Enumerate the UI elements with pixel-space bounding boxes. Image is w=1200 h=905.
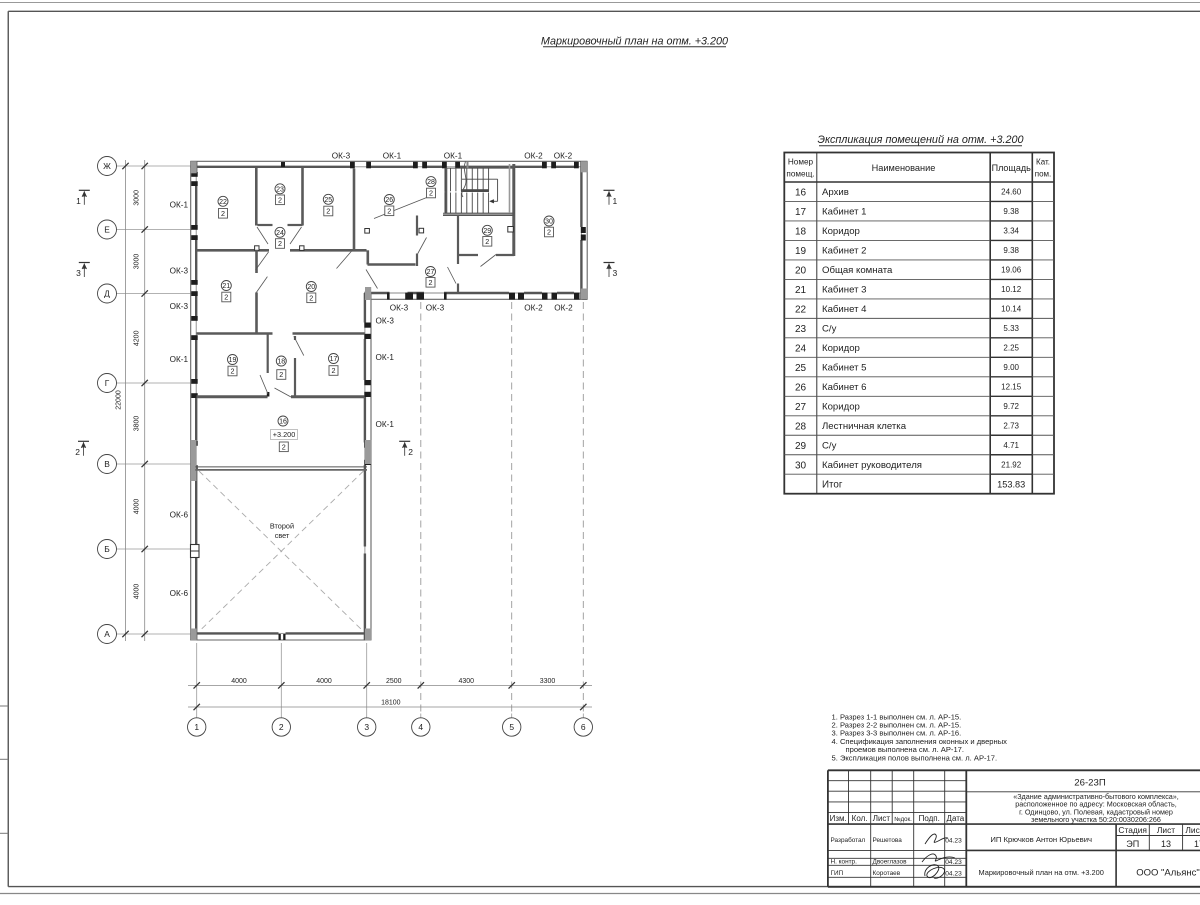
svg-text:20: 20 xyxy=(307,284,315,291)
svg-text:ОК-3: ОК-3 xyxy=(332,151,351,160)
svg-text:2: 2 xyxy=(75,447,80,457)
svg-text:29: 29 xyxy=(795,441,807,452)
svg-text:24: 24 xyxy=(795,343,807,354)
svg-text:23: 23 xyxy=(276,186,284,193)
svg-text:2: 2 xyxy=(429,189,433,198)
svg-text:ЭП: ЭП xyxy=(1126,839,1139,849)
svg-text:Коридор: Коридор xyxy=(822,343,860,354)
svg-text:1: 1 xyxy=(76,196,81,206)
svg-text:4200: 4200 xyxy=(133,330,140,346)
svg-text:16: 16 xyxy=(279,419,287,426)
svg-text:Кабинет 5: Кабинет 5 xyxy=(822,363,867,374)
svg-text:21.92: 21.92 xyxy=(1001,460,1022,469)
svg-text:29: 29 xyxy=(483,228,491,235)
svg-text:Коротаев: Коротаев xyxy=(873,870,901,877)
svg-text:2: 2 xyxy=(279,722,284,732)
svg-text:Листов: Листов xyxy=(1185,825,1200,835)
svg-text:ОК-1: ОК-1 xyxy=(170,200,189,209)
svg-text:2: 2 xyxy=(332,366,336,375)
svg-text:20: 20 xyxy=(795,265,807,276)
svg-text:2: 2 xyxy=(309,293,313,302)
svg-text:3: 3 xyxy=(613,268,618,278)
svg-text:ОК-2: ОК-2 xyxy=(554,303,573,312)
svg-text:Кабинет 6: Кабинет 6 xyxy=(822,382,867,393)
svg-text:2: 2 xyxy=(231,367,235,376)
svg-text:Номер: Номер xyxy=(788,158,814,167)
svg-text:Кабинет 2: Кабинет 2 xyxy=(822,246,867,257)
svg-text:3000: 3000 xyxy=(133,190,140,206)
svg-text:2: 2 xyxy=(224,293,228,302)
svg-text:30: 30 xyxy=(795,460,807,471)
svg-text:Д: Д xyxy=(104,289,110,299)
svg-text:ОК-6: ОК-6 xyxy=(170,510,189,519)
svg-text:А: А xyxy=(104,629,110,639)
svg-text:земельного участка 50:20:00302: земельного участка 50:20:0030206:266 xyxy=(1031,815,1161,824)
svg-text:30: 30 xyxy=(545,219,553,226)
svg-text:Кабинет 1: Кабинет 1 xyxy=(822,207,867,218)
svg-text:Н. контр.: Н. контр. xyxy=(831,859,858,866)
svg-text:12.15: 12.15 xyxy=(1001,382,1022,391)
svg-text:С/у: С/у xyxy=(822,440,837,451)
svg-text:2: 2 xyxy=(221,209,225,218)
svg-text:26: 26 xyxy=(385,197,393,204)
svg-text:19.06: 19.06 xyxy=(1001,266,1022,275)
svg-text:26: 26 xyxy=(795,382,807,393)
svg-text:2: 2 xyxy=(326,207,330,216)
svg-text:помещ.: помещ. xyxy=(786,170,814,179)
svg-text:Маркировочный план на отм. +3.: Маркировочный план на отм. +3.200 xyxy=(541,36,728,48)
svg-text:ОК-3: ОК-3 xyxy=(426,303,445,312)
svg-text:4000: 4000 xyxy=(133,499,140,515)
svg-text:Архив: Архив xyxy=(822,187,849,198)
svg-text:153.83: 153.83 xyxy=(997,480,1025,490)
svg-text:10.14: 10.14 xyxy=(1001,305,1022,314)
svg-text:6: 6 xyxy=(581,722,586,732)
svg-text:Экспликация помещений на отм.: Экспликация помещений на отм. +3.200 xyxy=(818,134,1024,146)
svg-text:Дата: Дата xyxy=(947,814,965,823)
svg-text:ООО "Альянс": ООО "Альянс" xyxy=(1136,867,1200,878)
svg-text:Лестничная клетка: Лестничная клетка xyxy=(822,421,907,432)
svg-text:ОК-1: ОК-1 xyxy=(376,420,395,429)
svg-text:свет: свет xyxy=(275,531,290,540)
svg-text:Двоеглазов: Двоеглазов xyxy=(873,859,908,866)
svg-text:18: 18 xyxy=(277,359,285,366)
svg-text:ОК-1: ОК-1 xyxy=(170,355,189,364)
svg-text:Кол.: Кол. xyxy=(852,814,868,823)
svg-text:9.38: 9.38 xyxy=(1003,207,1019,216)
svg-text:9.38: 9.38 xyxy=(1003,246,1019,255)
svg-text:4300: 4300 xyxy=(459,678,475,685)
svg-text:10.12: 10.12 xyxy=(1001,285,1022,294)
svg-text:4: 4 xyxy=(418,722,423,732)
svg-text:22000: 22000 xyxy=(116,390,123,410)
svg-text:2: 2 xyxy=(282,442,286,451)
svg-text:2500: 2500 xyxy=(386,678,402,685)
svg-text:ОК-3: ОК-3 xyxy=(170,266,189,275)
svg-text:ОК-2: ОК-2 xyxy=(554,151,573,160)
svg-text:Наименование: Наименование xyxy=(872,163,936,173)
svg-text:Лист: Лист xyxy=(873,814,891,823)
svg-text:2.73: 2.73 xyxy=(1003,421,1019,430)
svg-text:21: 21 xyxy=(795,285,807,296)
svg-text:27: 27 xyxy=(795,402,807,413)
svg-text:16: 16 xyxy=(795,188,807,199)
svg-text:3.34: 3.34 xyxy=(1003,227,1019,236)
svg-text:22: 22 xyxy=(795,304,807,315)
svg-text:21: 21 xyxy=(222,283,230,290)
svg-text:22: 22 xyxy=(219,199,227,206)
svg-text:ОК-3: ОК-3 xyxy=(390,303,409,312)
svg-text:2: 2 xyxy=(278,239,282,248)
svg-text:Е: Е xyxy=(104,225,110,235)
svg-text:Стадия: Стадия xyxy=(1118,825,1147,835)
svg-text:+3.200: +3.200 xyxy=(273,430,296,439)
svg-text:25: 25 xyxy=(795,363,807,374)
svg-text:2: 2 xyxy=(429,278,433,287)
svg-text:3: 3 xyxy=(364,722,369,732)
svg-text:ОК-1: ОК-1 xyxy=(444,151,463,160)
svg-text:23: 23 xyxy=(795,324,807,335)
svg-text:Кат.: Кат. xyxy=(1036,158,1050,167)
svg-text:5.33: 5.33 xyxy=(1003,324,1019,333)
svg-text:2: 2 xyxy=(547,228,551,237)
svg-text:ОК-1: ОК-1 xyxy=(376,353,395,362)
svg-text:В: В xyxy=(104,459,110,469)
svg-text:19: 19 xyxy=(795,246,807,257)
svg-text:Г: Г xyxy=(105,378,110,388)
svg-text:пом.: пом. xyxy=(1035,170,1052,179)
svg-text:Кабинет руководителя: Кабинет руководителя xyxy=(822,460,922,471)
svg-text:5: 5 xyxy=(509,722,514,732)
svg-text:Второй: Второй xyxy=(270,522,294,531)
svg-text:Ж: Ж xyxy=(103,161,111,171)
svg-text:4000: 4000 xyxy=(316,678,332,685)
svg-text:ОК-3: ОК-3 xyxy=(376,316,395,325)
svg-text:2: 2 xyxy=(485,237,489,246)
svg-text:4.71: 4.71 xyxy=(1003,441,1019,450)
svg-text:17: 17 xyxy=(330,356,338,363)
svg-text:27: 27 xyxy=(427,269,435,276)
svg-text:Б: Б xyxy=(104,544,110,554)
svg-text:2: 2 xyxy=(278,195,282,204)
svg-text:17: 17 xyxy=(795,207,807,218)
svg-text:ОК-1: ОК-1 xyxy=(383,151,402,160)
svg-text:Маркировочный план на отм. +3.: Маркировочный план на отм. +3.200 xyxy=(978,868,1103,877)
svg-text:17: 17 xyxy=(1194,839,1200,849)
svg-text:1: 1 xyxy=(613,196,618,206)
svg-text:Площадь: Площадь xyxy=(992,163,1031,173)
svg-text:Решетова: Решетова xyxy=(873,837,903,844)
svg-text:25: 25 xyxy=(324,197,332,204)
svg-text:Подп.: Подп. xyxy=(919,814,940,823)
svg-text:Изм.: Изм. xyxy=(830,814,847,823)
svg-text:04.23: 04.23 xyxy=(945,859,962,866)
svg-text:04.23: 04.23 xyxy=(945,871,962,878)
svg-text:3: 3 xyxy=(76,268,81,278)
svg-text:19: 19 xyxy=(229,357,237,364)
svg-text:ОК-3: ОК-3 xyxy=(170,302,189,311)
svg-text:ГИП: ГИП xyxy=(831,870,844,877)
svg-text:2.25: 2.25 xyxy=(1003,343,1019,352)
svg-text:Лист: Лист xyxy=(1157,825,1175,835)
svg-text:ОК-2: ОК-2 xyxy=(524,303,543,312)
svg-text:Кабинет 4: Кабинет 4 xyxy=(822,304,867,315)
svg-text:№док.: №док. xyxy=(894,816,912,823)
svg-text:Общая комната: Общая комната xyxy=(822,265,893,276)
svg-text:3000: 3000 xyxy=(133,254,140,270)
svg-text:Разработал: Разработал xyxy=(831,836,866,844)
svg-text:13: 13 xyxy=(1161,839,1171,849)
svg-text:3300: 3300 xyxy=(540,678,556,685)
svg-text:9.00: 9.00 xyxy=(1003,363,1019,372)
svg-text:3800: 3800 xyxy=(133,416,140,432)
svg-text:С/у: С/у xyxy=(822,324,837,335)
svg-text:26-23П: 26-23П xyxy=(1074,778,1106,789)
svg-text:Кабинет 3: Кабинет 3 xyxy=(822,285,867,296)
svg-text:ОК-2: ОК-2 xyxy=(524,151,543,160)
svg-text:5. Экспликация полов выполнена: 5. Экспликация полов выполнена см. л. АР… xyxy=(832,753,998,762)
svg-text:Коридор: Коридор xyxy=(822,226,860,237)
svg-text:2: 2 xyxy=(279,370,283,379)
svg-text:4000: 4000 xyxy=(231,678,247,685)
svg-text:4000: 4000 xyxy=(133,584,140,600)
svg-text:28: 28 xyxy=(795,421,807,432)
svg-text:24.60: 24.60 xyxy=(1001,188,1022,197)
svg-text:1: 1 xyxy=(194,722,199,732)
svg-text:18100: 18100 xyxy=(381,700,401,707)
svg-text:18: 18 xyxy=(795,227,807,238)
svg-text:24: 24 xyxy=(276,230,284,237)
svg-text:ОК-6: ОК-6 xyxy=(170,589,189,598)
svg-text:Коридор: Коридор xyxy=(822,402,860,413)
svg-text:Итог: Итог xyxy=(822,479,843,490)
svg-text:2: 2 xyxy=(408,447,413,457)
svg-text:2: 2 xyxy=(387,206,391,215)
svg-text:ИП Крючков Антон Юрьевич: ИП Крючков Антон Юрьевич xyxy=(990,835,1092,844)
svg-text:28: 28 xyxy=(427,179,435,186)
svg-text:9.72: 9.72 xyxy=(1003,402,1019,411)
